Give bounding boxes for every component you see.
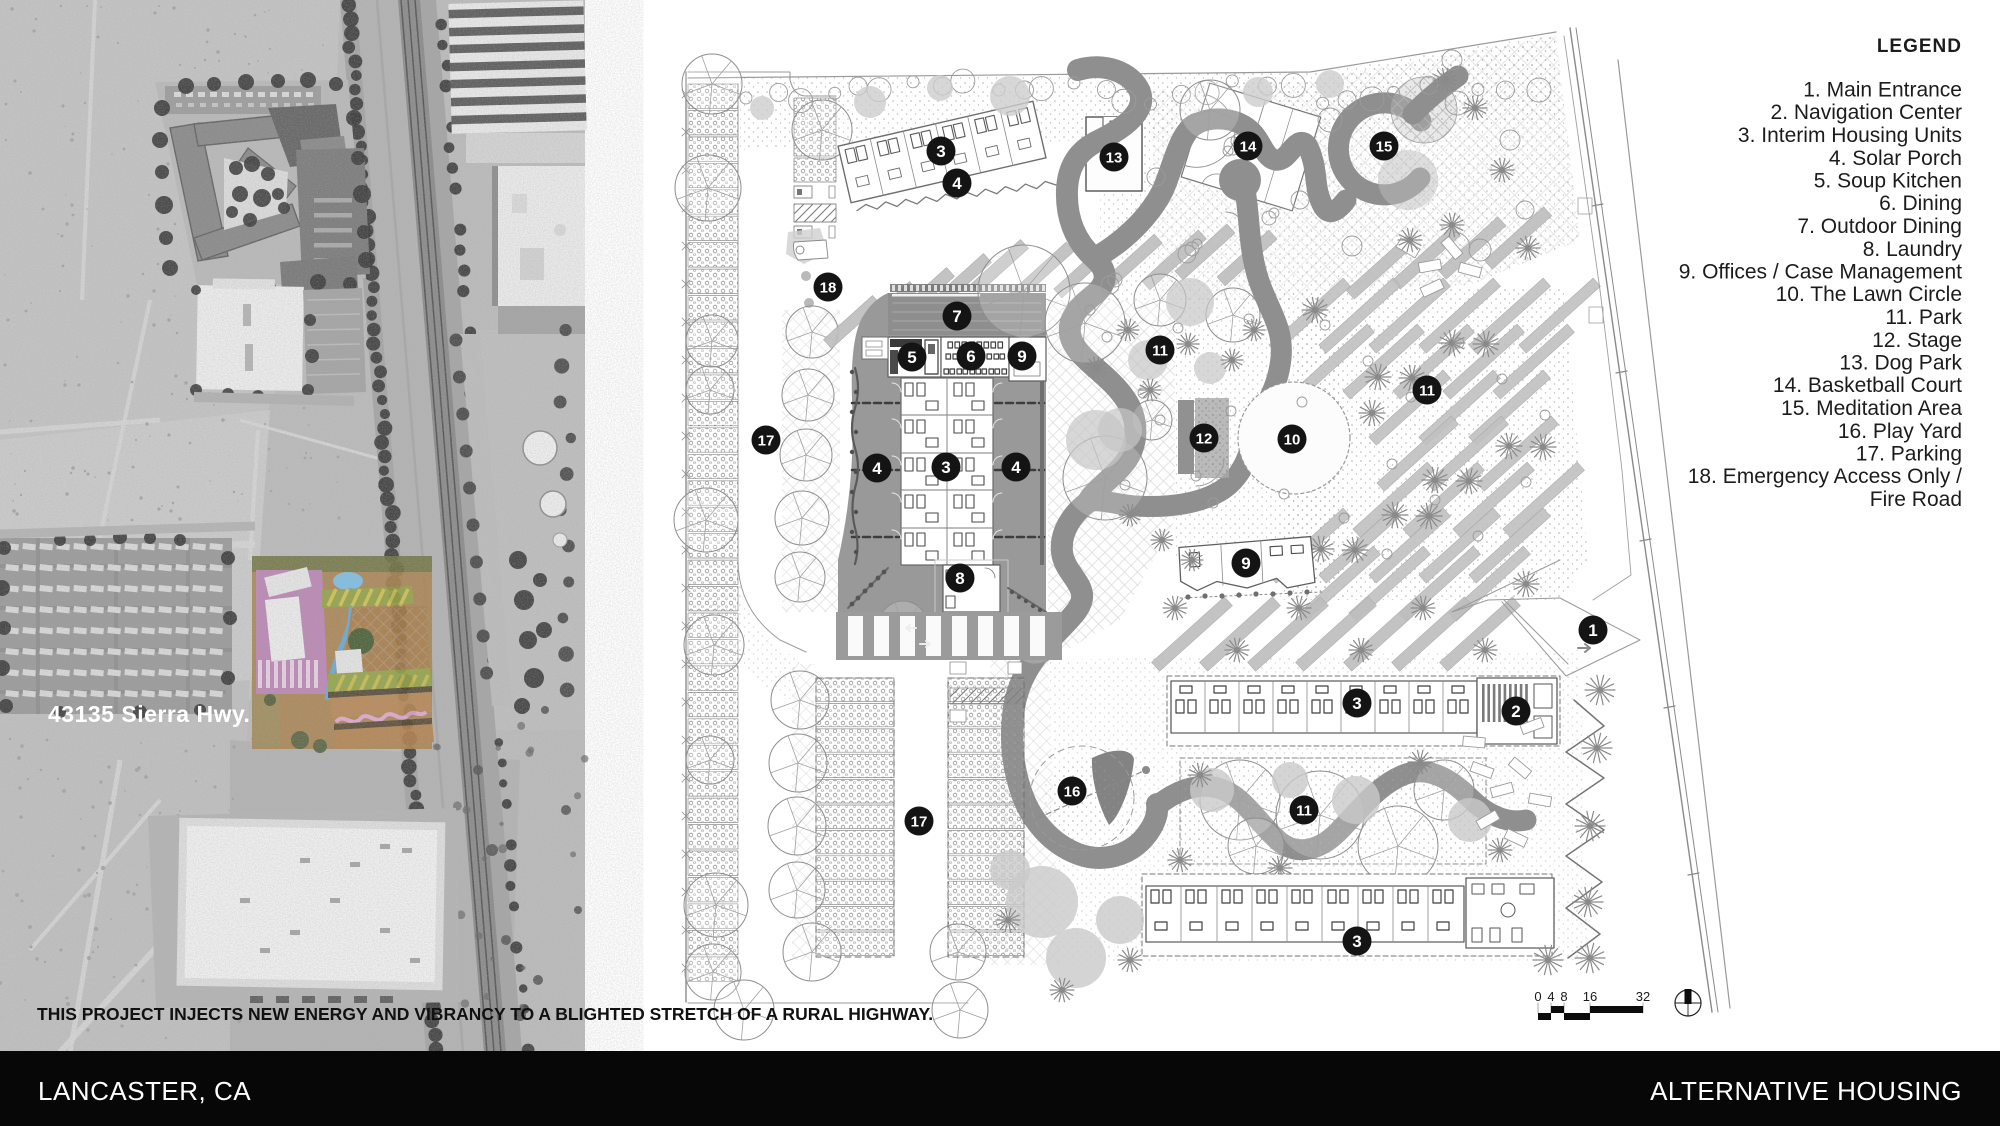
svg-text:15. Meditation Area: 15. Meditation Area bbox=[1781, 397, 1962, 420]
svg-text:3. Interim Housing Units: 3. Interim Housing Units bbox=[1738, 124, 1962, 147]
svg-text:11: 11 bbox=[1419, 382, 1435, 399]
svg-text:10. The Lawn Circle: 10. The Lawn Circle bbox=[1776, 283, 1962, 306]
svg-text:4: 4 bbox=[1011, 458, 1021, 477]
svg-text:16: 16 bbox=[1064, 783, 1081, 800]
svg-text:12. Stage: 12. Stage bbox=[1872, 329, 1962, 352]
svg-text:3: 3 bbox=[936, 142, 945, 161]
svg-text:1. Main Entrance: 1. Main Entrance bbox=[1803, 79, 1962, 102]
svg-text:18: 18 bbox=[820, 279, 837, 296]
svg-text:7: 7 bbox=[952, 307, 961, 326]
svg-text:3: 3 bbox=[1352, 694, 1361, 713]
svg-text:4. Solar Porch: 4. Solar Porch bbox=[1829, 147, 1962, 170]
svg-text:11: 11 bbox=[1296, 802, 1312, 819]
svg-text:14: 14 bbox=[1240, 138, 1257, 155]
svg-text:4: 4 bbox=[872, 459, 882, 478]
svg-text:16. Play Yard: 16. Play Yard bbox=[1838, 420, 1962, 443]
svg-text:12: 12 bbox=[1196, 430, 1213, 447]
svg-text:9: 9 bbox=[1241, 554, 1250, 573]
svg-text:10: 10 bbox=[1284, 431, 1301, 448]
svg-text:9. Offices / Case Management: 9. Offices / Case Management bbox=[1679, 261, 1962, 284]
svg-text:15: 15 bbox=[1376, 138, 1393, 155]
svg-text:LEGEND: LEGEND bbox=[1877, 36, 1962, 57]
svg-text:3: 3 bbox=[941, 458, 950, 477]
svg-text:5. Soup Kitchen: 5. Soup Kitchen bbox=[1814, 170, 1962, 193]
svg-text:0: 0 bbox=[1534, 989, 1541, 1004]
svg-text:43135 Sierra Hwy.: 43135 Sierra Hwy. bbox=[48, 701, 250, 727]
svg-text:18. Emergency Access Only /: 18. Emergency Access Only / bbox=[1688, 465, 1962, 488]
svg-text:8: 8 bbox=[1560, 989, 1567, 1004]
svg-text:16: 16 bbox=[1583, 989, 1597, 1004]
svg-text:THIS PROJECT INJECTS NEW ENERG: THIS PROJECT INJECTS NEW ENERGY AND VIBR… bbox=[37, 1004, 933, 1024]
svg-text:4: 4 bbox=[1547, 989, 1554, 1004]
svg-text:5: 5 bbox=[907, 348, 916, 367]
svg-text:17. Parking: 17. Parking bbox=[1856, 443, 1962, 466]
svg-text:6. Dining: 6. Dining bbox=[1879, 192, 1962, 215]
svg-text:7. Outdoor Dining: 7. Outdoor Dining bbox=[1797, 215, 1962, 238]
svg-text:2. Navigation Center: 2. Navigation Center bbox=[1771, 101, 1962, 124]
svg-text:1: 1 bbox=[1588, 621, 1597, 640]
svg-text:14. Basketball Court: 14. Basketball Court bbox=[1773, 374, 1962, 397]
svg-text:9: 9 bbox=[1017, 347, 1026, 366]
svg-text:4: 4 bbox=[952, 174, 962, 193]
svg-text:11. Park: 11. Park bbox=[1885, 306, 1962, 329]
svg-text:6: 6 bbox=[966, 347, 975, 366]
svg-text:Fire Road: Fire Road bbox=[1870, 488, 1962, 511]
svg-text:8. Laundry: 8. Laundry bbox=[1863, 238, 1963, 261]
svg-text:3: 3 bbox=[1352, 932, 1361, 951]
svg-text:32: 32 bbox=[1636, 989, 1650, 1004]
svg-text:ALTERNATIVE HOUSING: ALTERNATIVE HOUSING bbox=[1650, 1076, 1962, 1106]
svg-text:8: 8 bbox=[955, 569, 964, 588]
svg-text:LANCASTER, CA: LANCASTER, CA bbox=[38, 1076, 251, 1106]
svg-text:11: 11 bbox=[1152, 342, 1168, 359]
svg-text:17: 17 bbox=[911, 813, 928, 830]
svg-text:17: 17 bbox=[758, 432, 775, 449]
svg-text:2: 2 bbox=[1511, 702, 1520, 721]
svg-text:13: 13 bbox=[1106, 149, 1123, 166]
svg-text:13. Dog Park: 13. Dog Park bbox=[1839, 352, 1962, 375]
